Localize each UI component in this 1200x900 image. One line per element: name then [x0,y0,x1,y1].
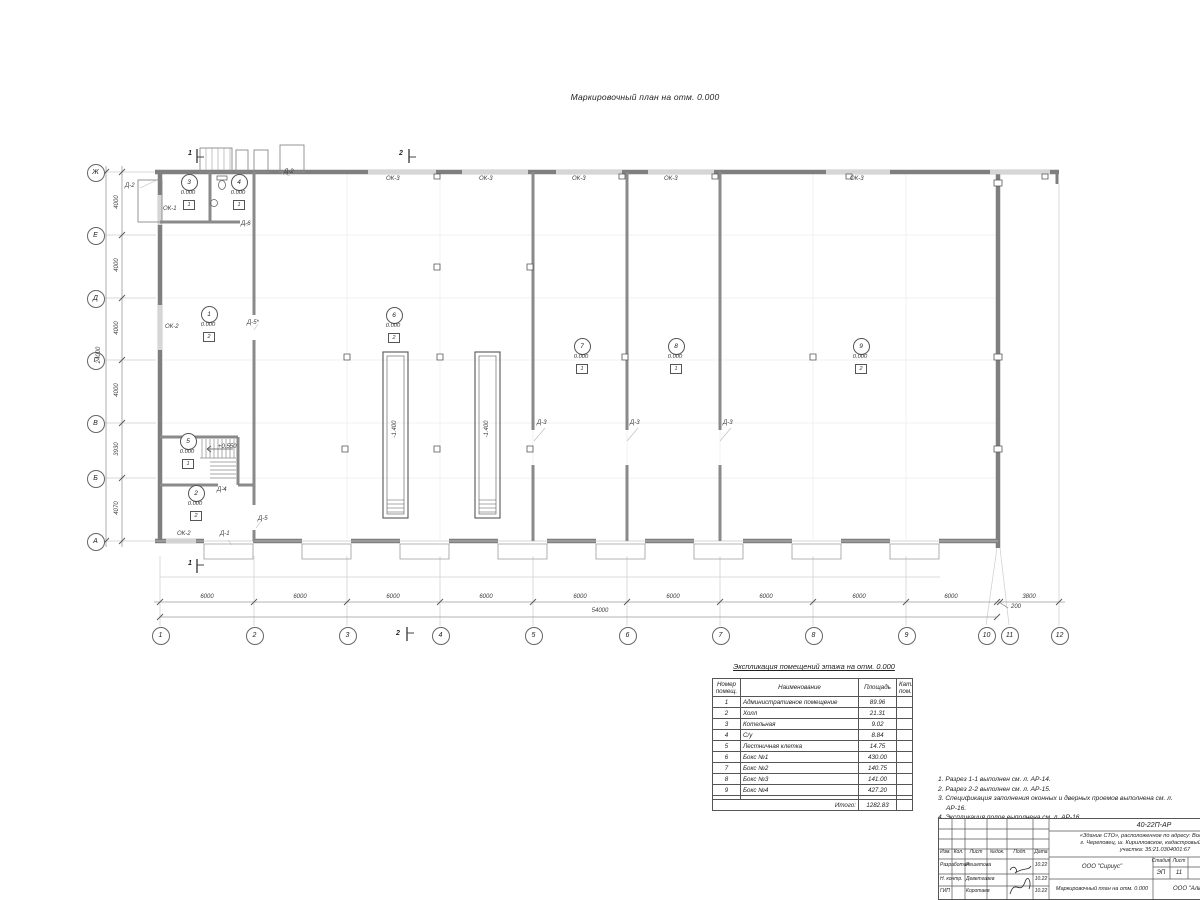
date-gip: 10.22 [1033,889,1049,895]
columns [342,174,1048,452]
table-cell [897,800,913,811]
table-cell: Бокс №2 [741,763,859,774]
signature-icon [1010,866,1031,873]
table-cell: С/у [741,730,859,741]
object-line3: участка: 35:21.0304001:67 [1051,847,1200,853]
table-cell: 5 [713,741,741,752]
sheet-label: Лист [1172,859,1186,865]
table-cell: Холл [741,708,859,719]
table-cell: 89.96 [859,697,897,708]
sheet-title: Маркировочный план на отм. 0.000 [1051,886,1153,892]
table-row: 2Холл21.31 [713,708,913,719]
name-developer: Решетова [966,863,1006,869]
explication-table: Номер помещ. Наименование Площадь Кат. п… [712,678,913,811]
stair [200,439,236,478]
table-row: 8Бокс №3141.00 [713,774,913,785]
sanitary-fixtures [211,176,228,207]
table-cell [897,763,913,774]
signatures [1010,866,1031,894]
table-cell: Итого: [713,800,859,811]
table-cell: 9.02 [859,719,897,730]
table-row: Итого:1282.83 [713,800,913,811]
explication: Экспликация помещений этажа на отм. 0.00… [712,662,916,811]
company-name: ООО "Сириус" [1051,864,1153,871]
table-row: 1Административное помещение89.96 [713,697,913,708]
table-cell: 427.20 [859,785,897,796]
note-item: 1. Разрез 1-1 выполнен см. л. АР-14. [938,775,1192,785]
name-ncontrol: Деветгазев [966,877,1006,883]
col-izm: Изм. [939,850,952,856]
explication-title: Экспликация помещений этажа на отм. 0.00… [712,662,916,671]
table-cell: 2 [713,708,741,719]
notes-list: 1. Разрез 1-1 выполнен см. л. АР-14.2. Р… [938,775,1192,823]
role-developer: Разработал [940,863,966,869]
porches [138,145,304,222]
stage-value: ЭП [1151,870,1171,877]
note-item: 3. Спецификация заполнения оконных и две… [938,794,1192,813]
table-cell: 14.75 [859,741,897,752]
table-cell: 430.00 [859,752,897,763]
table-cell: Бокс №3 [741,774,859,785]
table-row: 9Бокс №4427.20 [713,785,913,796]
table-cell: 3 [713,719,741,730]
table-cell: 7 [713,763,741,774]
table-cell [897,708,913,719]
table-cell [897,730,913,741]
window-openings [160,172,1050,541]
date-developer: 10.22 [1033,863,1049,869]
table-cell: Лестничная клетка [741,741,859,752]
table-cell [897,785,913,796]
col-list: Лист [965,850,987,856]
table-cell: Административное помещение [741,697,859,708]
explication-header-row: Номер помещ. Наименование Площадь Кат. п… [713,679,913,697]
dimension-lines [106,166,1065,617]
note-item: 2. Разрез 2-2 выполнен см. л. АР-15. [938,785,1192,795]
table-row: 3Котельная9.02 [713,719,913,730]
stage-label: Стадия [1150,859,1172,865]
floor-plan-linework [0,0,1200,700]
table-cell: 4 [713,730,741,741]
role-ncontrol: Н. контр. [940,877,966,883]
table-row: 6Бокс №1430.00 [713,752,913,763]
sheet-value: 11 [1171,870,1187,877]
table-cell: 1282.83 [859,800,897,811]
col-category: Кат. пом. [897,679,913,697]
col-ndoc: №док. [987,850,1007,856]
title-block: 40-22П-АР «Здание СТО», расположенное по… [938,818,1200,900]
table-row: 7Бокс №2140.75 [713,763,913,774]
col-area: Площадь [859,679,897,697]
garage-door-aprons [204,544,939,559]
inspection-pits [383,352,500,518]
table-cell: Котельная [741,719,859,730]
table-cell [897,719,913,730]
leader-lines [140,173,731,545]
firm-name: ООО "Аль [1173,886,1200,893]
col-kol: Кол. [952,850,965,856]
table-cell: 9 [713,785,741,796]
doc-number: 40-22П-АР [1049,822,1200,830]
table-cell: Бокс №4 [741,785,859,796]
table-cell: 140.75 [859,763,897,774]
table-row: 5Лестничная клетка14.75 [713,741,913,752]
table-cell [897,752,913,763]
table-cell [897,697,913,708]
table-cell: Бокс №1 [741,752,859,763]
role-gip: ГИП [940,889,966,895]
col-data: Дата [1033,850,1049,856]
table-cell: 141.00 [859,774,897,785]
table-cell: 8 [713,774,741,785]
table-row: 4С/у8.84 [713,730,913,741]
table-cell: 21.31 [859,708,897,719]
object-line2: г. Череповец, ш. Кирилловское, кадастров… [1051,840,1200,846]
col-podp: Подп. [1007,850,1033,856]
date-ncontrol: 10.22 [1033,877,1049,883]
table-cell [897,774,913,785]
col-room-number: Номер помещ. [713,679,741,697]
col-name: Наименование [741,679,859,697]
table-cell: 1 [713,697,741,708]
table-cell [897,741,913,752]
object-line1: «Здание СТО», расположенное по адресу: В… [1051,833,1200,839]
drawing-sheet: { "page": {"title": "Маркировочный план … [0,0,1200,900]
table-cell: 6 [713,752,741,763]
name-gip: Коротаев [966,889,1006,895]
table-cell: 8.84 [859,730,897,741]
